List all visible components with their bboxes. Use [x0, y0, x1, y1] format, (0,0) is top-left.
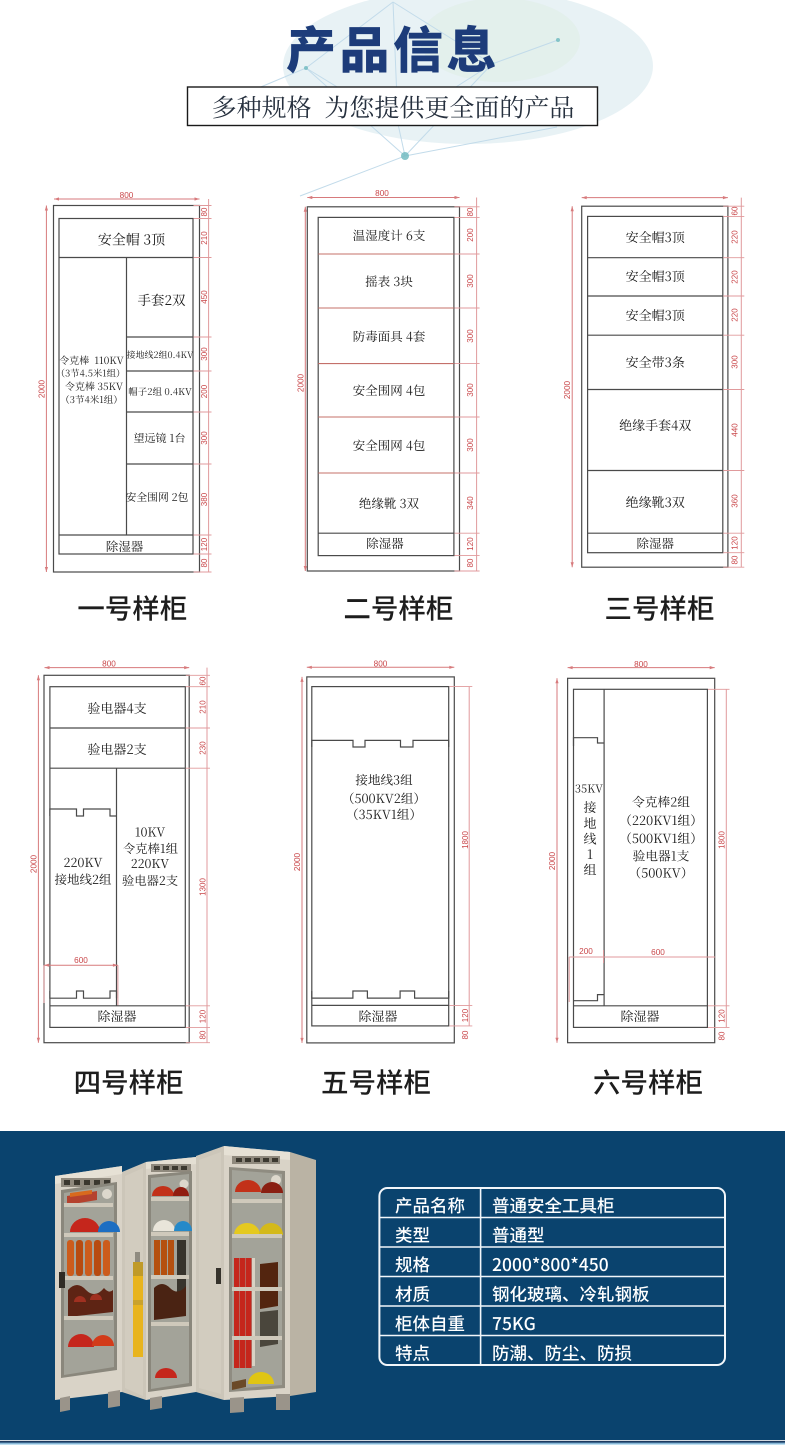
svg-text:360: 360	[730, 494, 739, 508]
svg-text:300: 300	[466, 329, 475, 343]
svg-text:440: 440	[730, 423, 739, 437]
svg-text:200: 200	[200, 384, 209, 398]
svg-text:450: 450	[200, 290, 209, 304]
svg-text:120: 120	[200, 537, 209, 551]
svg-text:2000: 2000	[293, 852, 302, 871]
svg-text:80: 80	[466, 207, 475, 216]
svg-text:800: 800	[120, 191, 134, 200]
svg-text:1800: 1800	[718, 831, 727, 849]
svg-text:380: 380	[200, 492, 209, 506]
svg-text:80: 80	[466, 558, 475, 567]
svg-text:120: 120	[718, 1009, 727, 1023]
svg-text:300: 300	[730, 355, 739, 369]
svg-text:2000: 2000	[38, 379, 47, 398]
svg-text:300: 300	[466, 383, 475, 397]
svg-text:200: 200	[579, 947, 593, 956]
svg-text:80: 80	[461, 1030, 470, 1039]
svg-text:2000: 2000	[30, 854, 39, 873]
svg-text:300: 300	[466, 438, 475, 452]
svg-text:80: 80	[200, 207, 209, 216]
svg-text:2000: 2000	[563, 380, 572, 399]
svg-text:230: 230	[199, 741, 208, 755]
svg-text:80: 80	[200, 558, 209, 567]
svg-text:1800: 1800	[461, 831, 470, 849]
svg-text:220: 220	[730, 308, 739, 322]
svg-text:210: 210	[200, 231, 209, 245]
svg-text:80: 80	[718, 1031, 727, 1040]
svg-text:120: 120	[730, 536, 739, 550]
svg-text:120: 120	[461, 1008, 470, 1022]
svg-text:120: 120	[199, 1009, 208, 1023]
svg-text:300: 300	[466, 274, 475, 288]
svg-text:800: 800	[634, 660, 648, 669]
svg-text:800: 800	[374, 660, 388, 669]
svg-text:600: 600	[74, 956, 88, 965]
svg-text:80: 80	[730, 555, 739, 564]
svg-text:220: 220	[730, 230, 739, 244]
svg-text:800: 800	[102, 660, 116, 669]
svg-text:60: 60	[730, 206, 739, 215]
svg-text:300: 300	[200, 431, 209, 445]
svg-text:80: 80	[199, 1030, 208, 1039]
svg-text:340: 340	[466, 496, 475, 510]
svg-text:2000: 2000	[296, 373, 305, 392]
svg-text:200: 200	[466, 228, 475, 242]
svg-text:120: 120	[466, 537, 475, 551]
svg-text:800: 800	[375, 189, 389, 198]
svg-text:600: 600	[651, 948, 665, 957]
svg-text:2000: 2000	[548, 851, 557, 870]
svg-text:1300: 1300	[199, 878, 208, 896]
svg-text:60: 60	[199, 676, 208, 685]
svg-text:300: 300	[200, 347, 209, 361]
svg-text:220: 220	[730, 270, 739, 284]
svg-text:210: 210	[199, 700, 208, 714]
